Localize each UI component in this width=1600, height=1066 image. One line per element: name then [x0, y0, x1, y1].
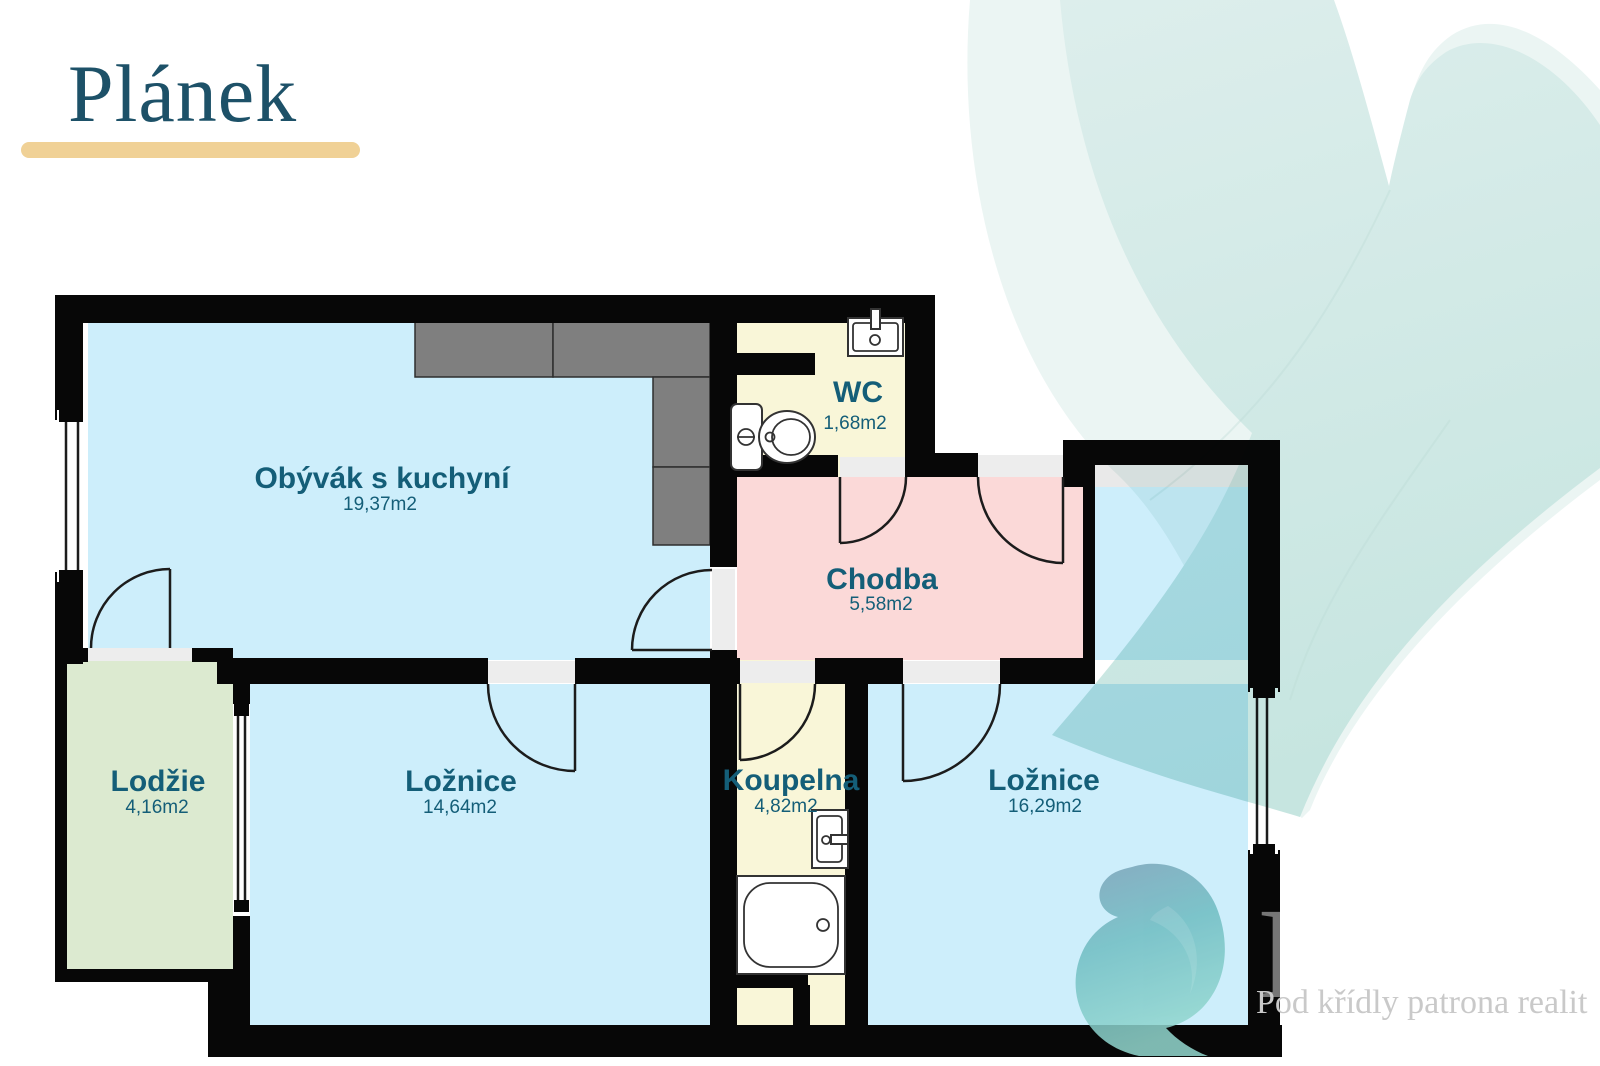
- room-area-bathroom: 4,82m2: [754, 796, 817, 817]
- window-loggia-bedroom: [233, 704, 250, 916]
- bedroom1-floor: [250, 684, 710, 1025]
- title-underline: [21, 142, 360, 158]
- room-label-wc: WC: [833, 376, 883, 409]
- watermark-tagline: Pod křídly patrona realit: [1256, 984, 1588, 1021]
- room-label-hall: Chodba: [826, 563, 938, 596]
- room-label-bedroom2: Ložnice: [988, 764, 1100, 797]
- room-label-bathroom: Koupelna: [723, 764, 860, 797]
- floor-plan-page: P Pod křídly patrona realit Obývák s kuc…: [0, 0, 1600, 1066]
- bathroom-sink-icon: [812, 810, 848, 868]
- room-label-living: Obývák s kuchyní: [254, 462, 511, 495]
- room-label-loggia: Lodžie: [111, 765, 206, 798]
- room-area-living: 19,37m2: [343, 494, 417, 515]
- room-area-bedroom1: 14,64m2: [423, 797, 497, 818]
- window-living-left: [57, 406, 86, 586]
- watermark: P Pod křídly patrona realit: [1256, 882, 1588, 1026]
- bathtub-icon: [737, 876, 845, 974]
- room-area-wc: 1,68m2: [823, 413, 886, 434]
- room-label-bedroom1: Ložnice: [405, 765, 517, 798]
- room-area-bedroom2: 16,29m2: [1008, 796, 1082, 817]
- page-title: Plánek: [68, 48, 297, 139]
- room-area-loggia: 4,16m2: [125, 797, 188, 818]
- floor-plan-canvas: P Pod křídly patrona realit Obývák s kuc…: [0, 0, 1600, 1066]
- header: Plánek: [21, 48, 360, 158]
- room-area-hall: 5,58m2: [849, 594, 912, 615]
